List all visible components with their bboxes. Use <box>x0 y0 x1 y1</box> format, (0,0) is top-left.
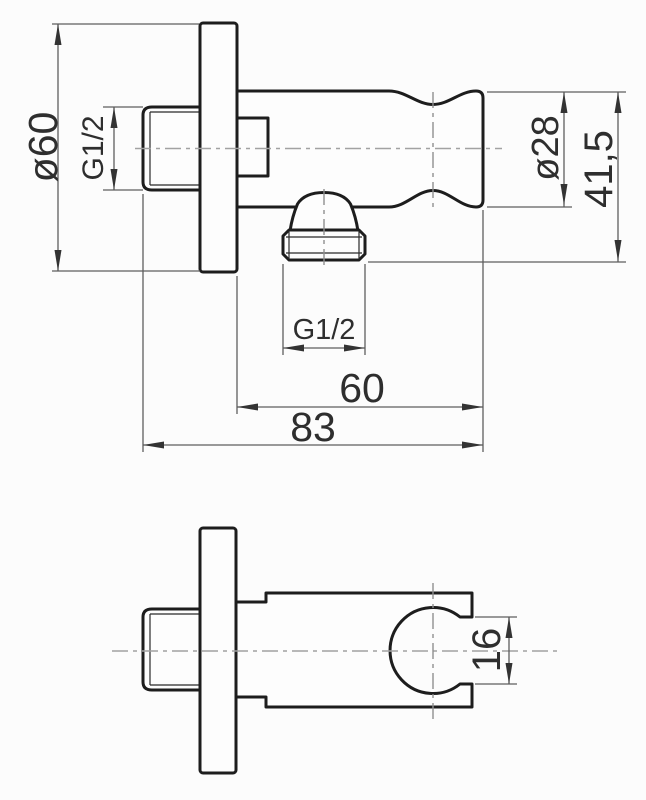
dim-label-plate-diameter: ø60 <box>20 112 66 183</box>
arrow-right-icon <box>462 404 483 411</box>
arrow-left-icon <box>237 404 258 411</box>
dim-holder-diameter: ø28 <box>487 92 572 207</box>
arrow-up-icon <box>561 92 568 113</box>
arrow-left-icon <box>143 442 164 449</box>
dim-label-wall-to-holder-depth: 60 <box>339 365 385 411</box>
body-with-holder-slot <box>236 593 472 707</box>
dim-label-overall-depth: 83 <box>290 404 336 450</box>
dim-label-wall-thread: G1/2 <box>77 115 110 180</box>
wall-thread-nipple <box>143 609 200 690</box>
dim-wall-thread: G1/2 <box>77 107 143 190</box>
arrow-down-icon <box>615 240 622 261</box>
dim-label-holder-to-outlet-height: 41,5 <box>577 130 621 208</box>
dim-label-slot-width: 16 <box>465 628 509 673</box>
bottom-view: 16 <box>112 528 558 773</box>
dim-label-holder-diameter: ø28 <box>525 115 567 180</box>
arrow-up-icon <box>111 107 118 128</box>
arrow-down-icon <box>111 169 118 190</box>
arrow-up-icon <box>55 24 62 45</box>
dim-label-outlet-thread: G1/2 <box>293 314 356 346</box>
dim-outlet-thread: G1/2 <box>283 264 365 355</box>
arrow-up-icon <box>615 92 622 113</box>
arrow-down-icon <box>55 250 62 271</box>
front-view: ø60 G1/2 ø28 41,5 <box>20 23 626 452</box>
dim-slot-width: 16 <box>465 617 517 684</box>
arrow-down-icon <box>561 184 568 205</box>
technical-drawing: ø60 G1/2 ø28 41,5 <box>0 0 646 800</box>
wall-plate <box>200 23 237 272</box>
arrow-right-icon <box>462 442 483 449</box>
drawing-page: ø60 G1/2 ø28 41,5 <box>0 0 646 800</box>
